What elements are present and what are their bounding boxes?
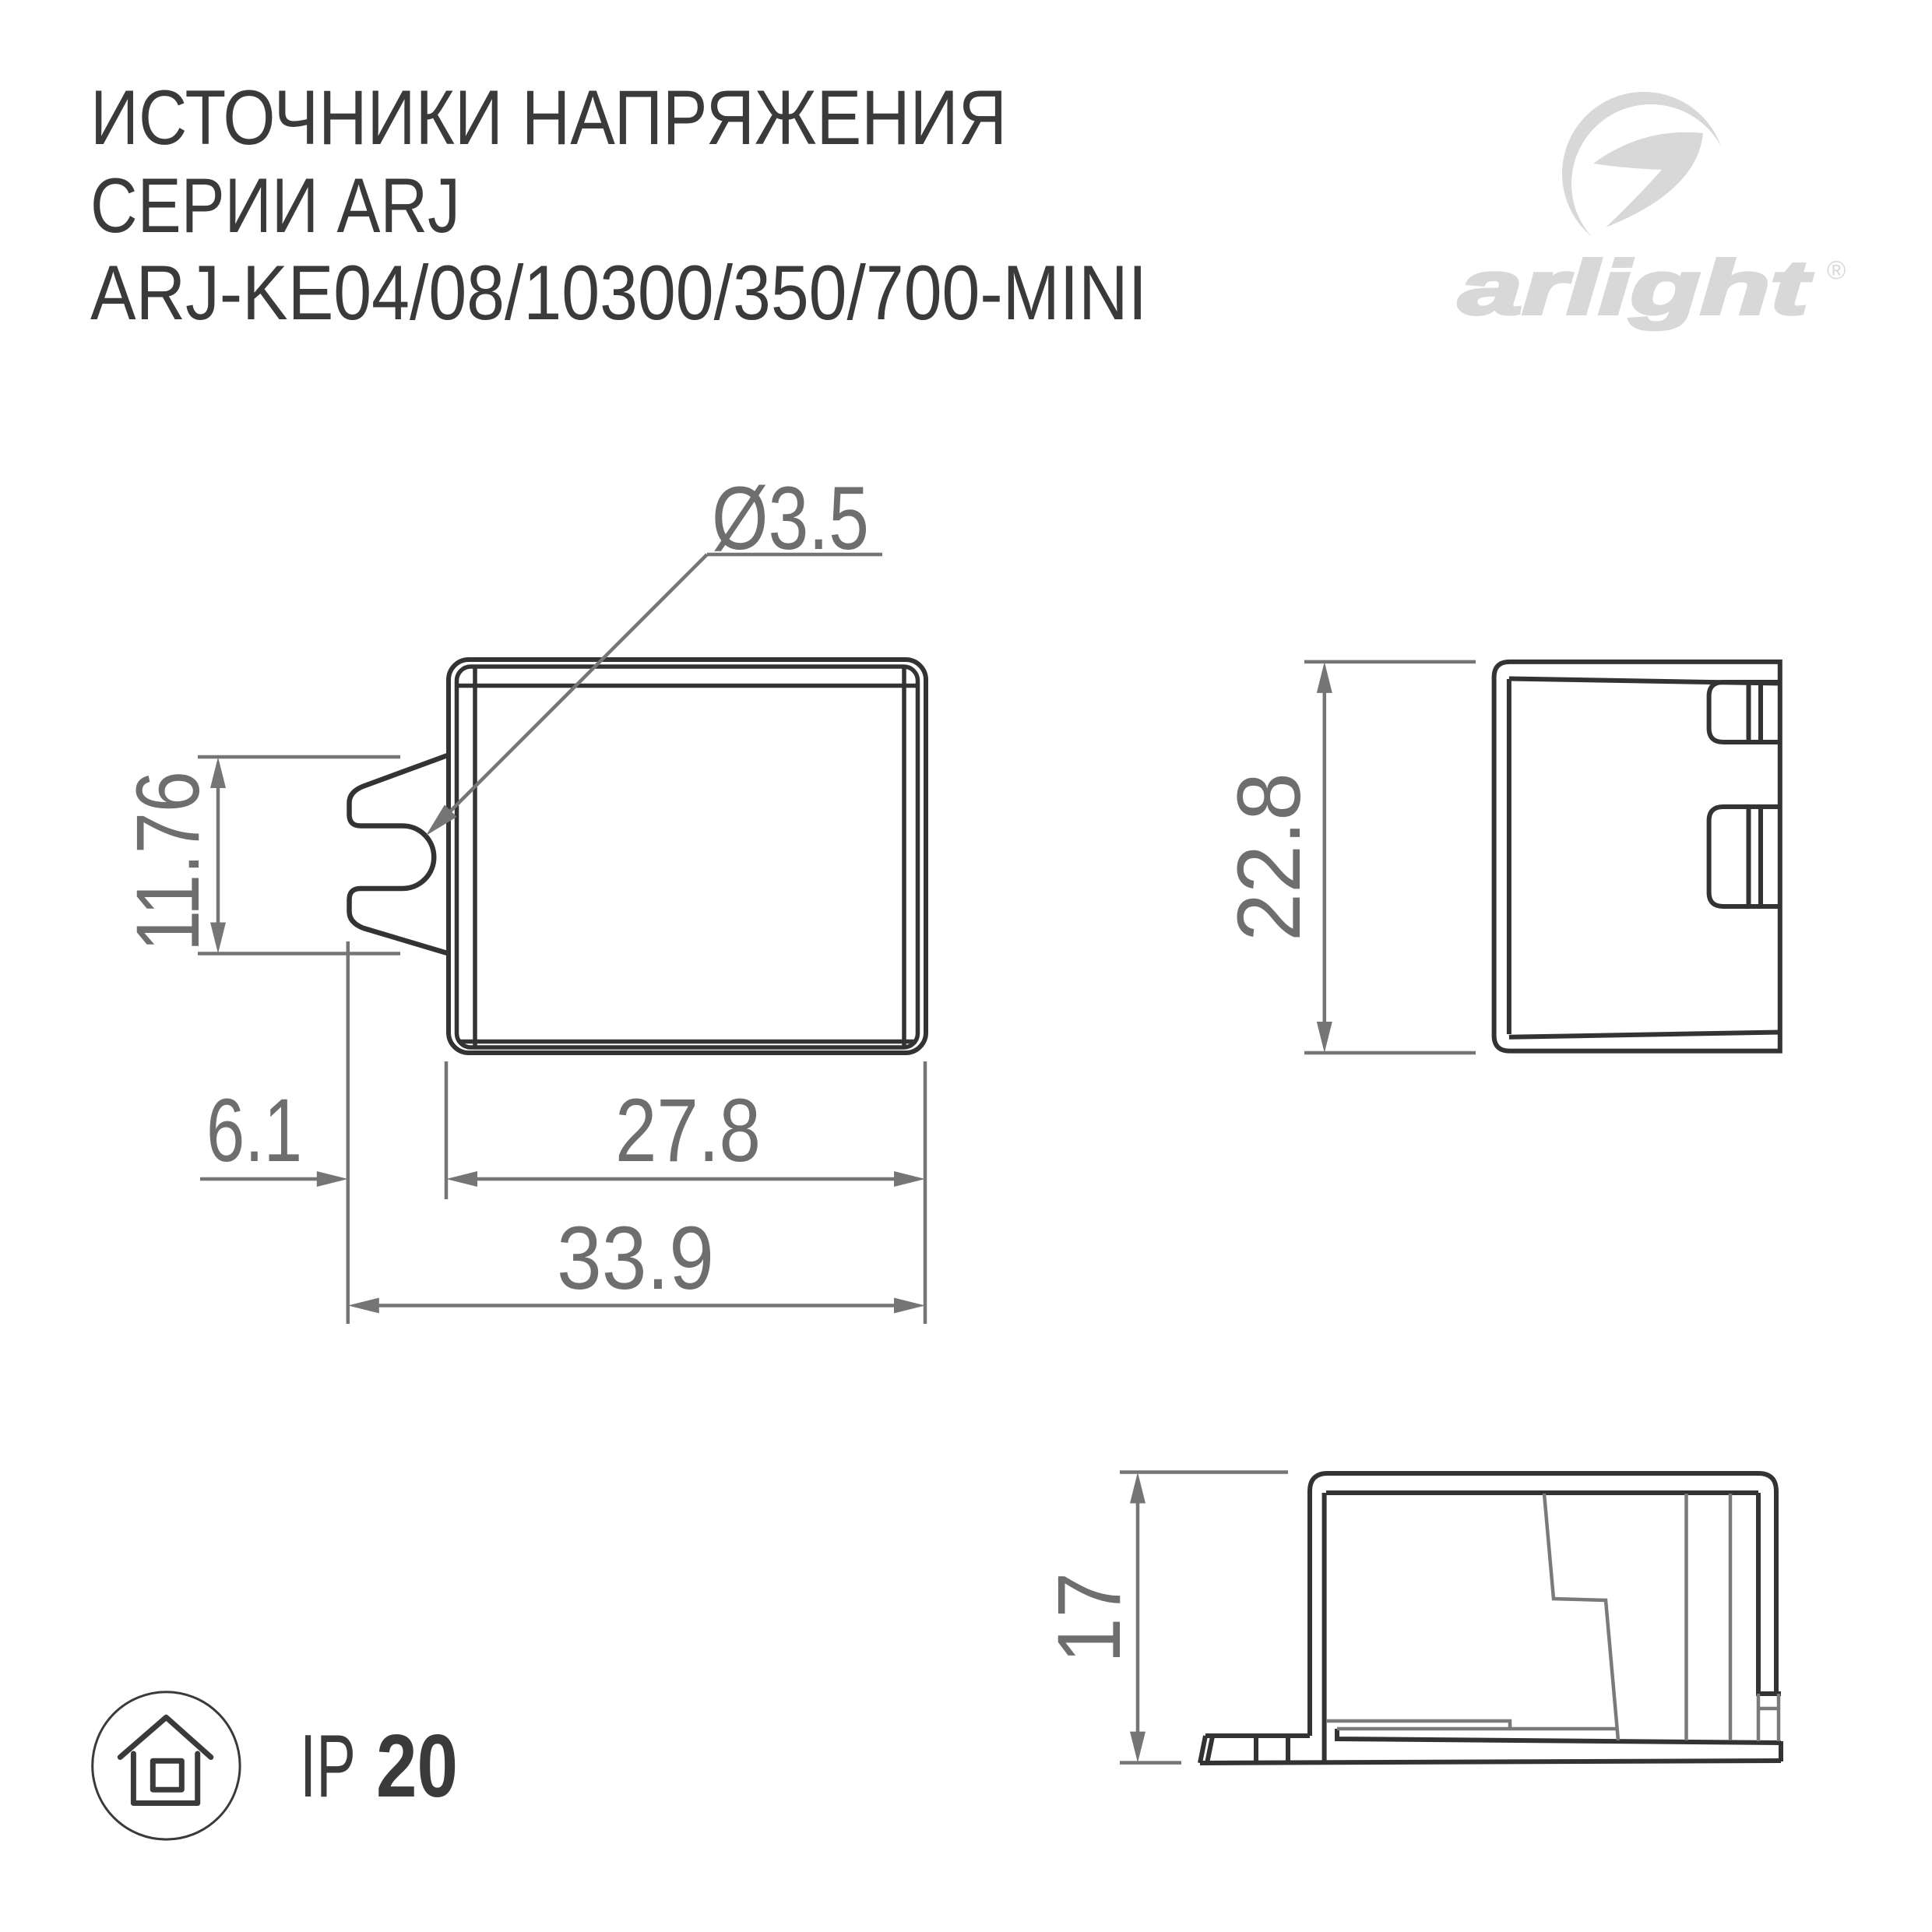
svg-text:ARJ-KE04/08/10300/350/700-MINI: ARJ-KE04/08/10300/350/700-MINI — [90, 249, 1147, 336]
svg-text:®: ® — [1827, 255, 1846, 284]
svg-text:27.8: 27.8 — [615, 1081, 761, 1181]
svg-text:17: 17 — [1040, 1572, 1139, 1663]
svg-text:СЕРИИ ARJ: СЕРИИ ARJ — [90, 162, 460, 248]
svg-text:20: 20 — [376, 1717, 458, 1816]
svg-text:arlight: arlight — [1459, 245, 1812, 330]
svg-text:Ø3.5: Ø3.5 — [712, 469, 869, 568]
svg-text:11.76: 11.76 — [118, 771, 218, 952]
svg-text:22.8: 22.8 — [1219, 772, 1319, 941]
svg-text:6.1: 6.1 — [206, 1081, 302, 1181]
svg-text:ИСТОЧНИКИ НАПРЯЖЕНИЯ: ИСТОЧНИКИ НАПРЯЖЕНИЯ — [90, 74, 1007, 160]
svg-text:IP: IP — [300, 1717, 356, 1816]
svg-text:33.9: 33.9 — [557, 1209, 714, 1308]
